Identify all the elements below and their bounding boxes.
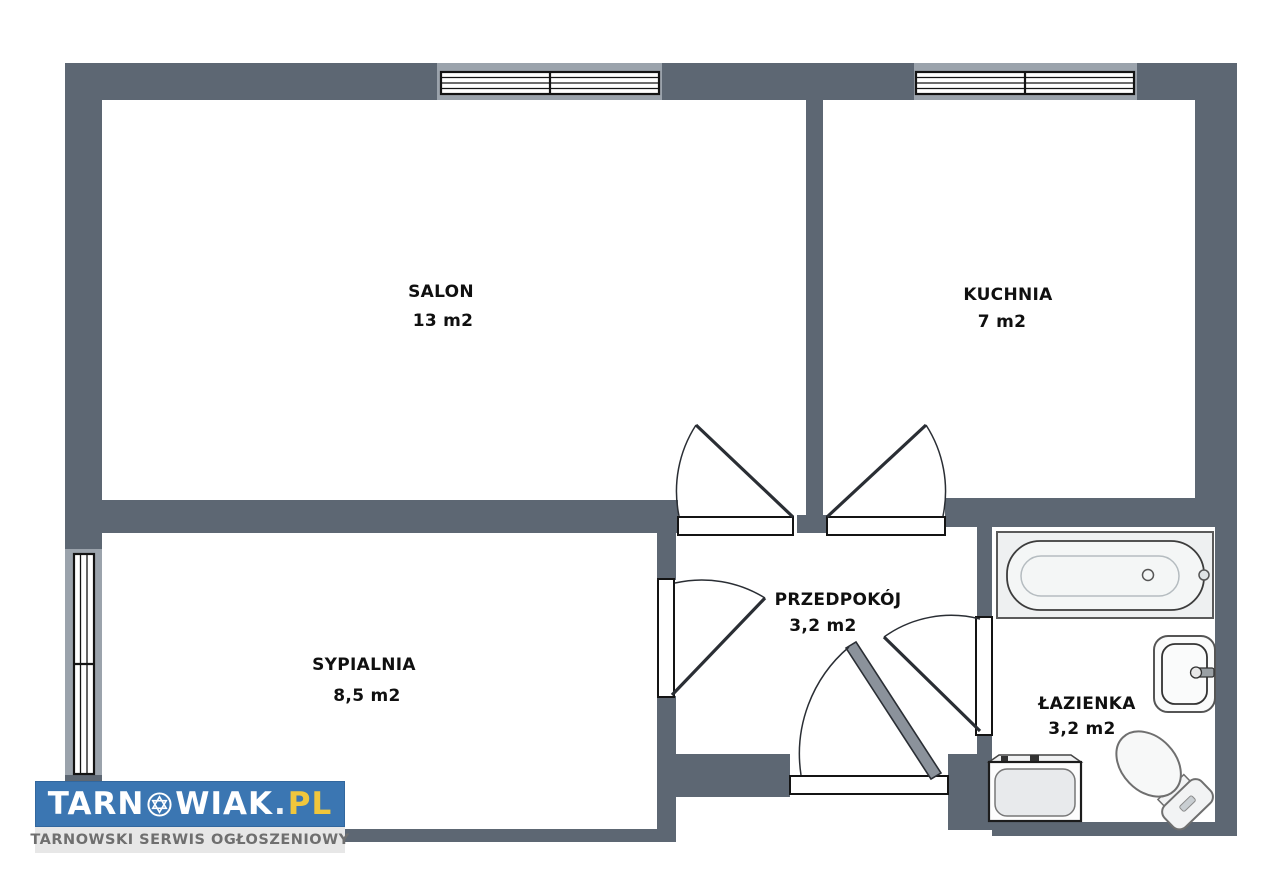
room-label-salon: SALON	[408, 282, 474, 302]
room-label-kuchnia: KUCHNIA	[963, 285, 1052, 305]
bathroom-bottom-wall	[992, 822, 1237, 836]
room-area-salon: 13 m2	[413, 311, 474, 331]
salon-kitchen-divider-wall	[806, 100, 823, 517]
logo-brand-bar: TARN WIAK . PL	[35, 781, 345, 827]
logo-brand-end: WIAK	[175, 789, 273, 820]
logo-tld: PL	[288, 789, 332, 820]
toilet-icon	[1104, 719, 1218, 834]
exterior-right-wall-upper	[1195, 63, 1237, 498]
logo-tagline: TARNOWSKI SERWIS OGŁOSZENIOWY	[35, 827, 345, 853]
entrance-door-icon	[799, 642, 941, 779]
exterior-right-wall-lower	[1215, 498, 1237, 836]
room-label-lazienka: ŁAZIENKA	[1038, 694, 1135, 714]
washing-machine-icon	[989, 755, 1081, 821]
room-area-kuchnia: 7 m2	[978, 312, 1027, 332]
salon-door-threshold	[678, 517, 793, 535]
bedroom-window-icon	[74, 554, 94, 774]
bedroom-door-icon	[672, 580, 765, 695]
door-pier-block	[797, 515, 828, 533]
hall-bottom-wall	[676, 754, 790, 797]
entrance-door-threshold	[790, 776, 948, 794]
floor-plan-page: SALON 13 m2 KUCHNIA 7 m2 SYPIALNIA 8,5 m…	[0, 0, 1280, 873]
kitchen-door-icon	[827, 425, 946, 517]
room-label-sypialnia: SYPIALNIA	[312, 655, 416, 675]
bathtub-drain-icon	[1143, 570, 1154, 581]
bathtub-icon	[997, 532, 1213, 618]
logo-brand-start: TARN	[48, 789, 145, 820]
salon-window-icon	[441, 72, 659, 94]
logo-separator: .	[274, 789, 287, 820]
bathroom-left-wall-upper	[977, 527, 992, 618]
room-label-przedpokoj: PRZEDPOKÓJ	[775, 590, 902, 610]
room-area-sypialnia: 8,5 m2	[333, 686, 400, 706]
washbasin-icon	[1154, 636, 1215, 712]
star-icon	[146, 791, 173, 818]
salon-door-icon	[676, 425, 793, 517]
bathtub-faucet-icon	[1199, 570, 1209, 580]
bedroom-hall-wall-upper	[657, 533, 676, 580]
bathroom-door-threshold	[976, 617, 992, 735]
room-area-przedpokoj: 3,2 m2	[789, 616, 856, 636]
bedroom-door-threshold	[658, 579, 674, 697]
kitchen-door-threshold	[827, 517, 945, 535]
floor-plan-drawing	[0, 0, 1280, 873]
tarnowiak-logo: TARN WIAK . PL TARNOWSKI SERWIS OGŁOSZEN…	[35, 781, 345, 853]
kitchen-bathroom-divider-wall	[945, 498, 1237, 527]
salon-bedroom-divider-wall	[65, 500, 678, 533]
room-area-lazienka: 3,2 m2	[1048, 719, 1115, 739]
kitchen-window-icon	[916, 72, 1134, 94]
bedroom-hall-wall-lower	[657, 696, 676, 842]
